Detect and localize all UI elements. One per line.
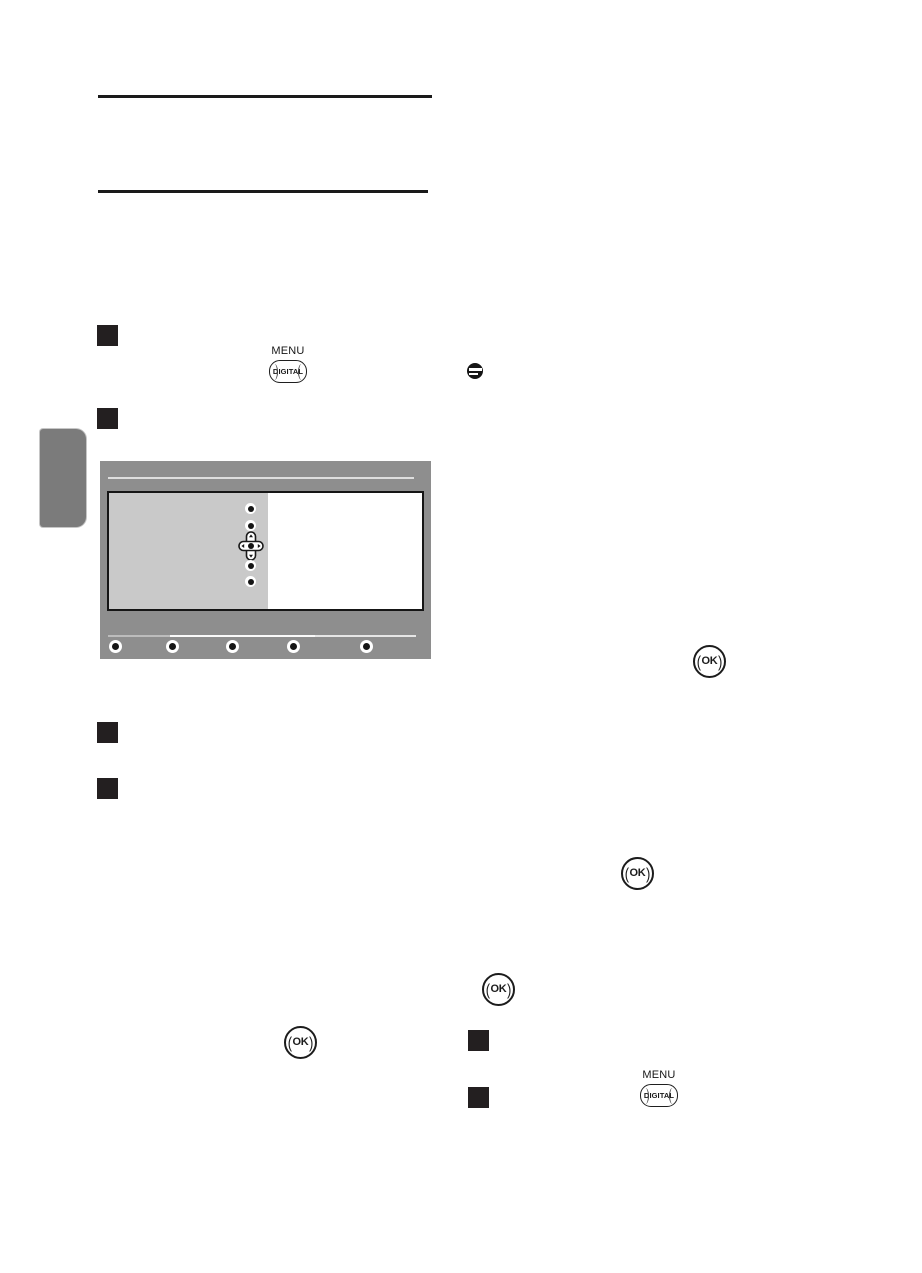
menu-title-line: [108, 477, 414, 479]
menu-key-label: MENU: [271, 346, 304, 357]
menu-digital-key: MENU DIGITAL: [637, 1070, 681, 1107]
note-icon: [467, 363, 483, 379]
step-marker-4: [97, 778, 118, 799]
step-marker-1: [97, 325, 118, 346]
menu-panel: [107, 491, 424, 611]
manual-page: MENU DIGITAL (O: [0, 0, 922, 1273]
menu-key-label: MENU: [642, 1070, 675, 1081]
menu-item-dot: [245, 520, 256, 531]
color-key-dot: [287, 640, 300, 653]
ok-paren-left: (: [486, 982, 490, 998]
tv-menu-mockup: [100, 461, 431, 659]
digital-button-icon: DIGITAL: [269, 360, 307, 383]
ok-key-icon: (OK): [693, 645, 726, 678]
ok-paren-right: ): [646, 866, 650, 882]
ok-key-label: OK: [629, 868, 646, 879]
ok-paren-left: (: [625, 866, 629, 882]
footer-key-line-segment: [315, 635, 416, 637]
color-key-dot: [360, 640, 373, 653]
ok-paren-left: (: [288, 1035, 292, 1051]
menu-item-dot: [245, 503, 256, 514]
ok-key-icon: (OK): [621, 857, 654, 890]
step-marker-6: [468, 1087, 489, 1108]
navigation-cross-icon: [238, 531, 264, 561]
ok-key-label: OK: [490, 984, 507, 995]
color-key-dot: [166, 640, 179, 653]
step-marker-2: [97, 408, 118, 429]
ok-paren-left: (: [697, 654, 701, 670]
menu-item-dot: [245, 576, 256, 587]
digital-button-icon: DIGITAL: [640, 1084, 678, 1107]
ok-key-icon: (OK): [284, 1026, 317, 1059]
footer-key-line-segment: [108, 635, 170, 637]
ok-paren-right: ): [507, 982, 511, 998]
ok-key-icon: (OK): [482, 973, 515, 1006]
ok-paren-right: ): [309, 1035, 313, 1051]
ok-key-label: OK: [701, 656, 718, 667]
menu-item-dot: [245, 560, 256, 571]
step-marker-3: [97, 722, 118, 743]
menu-digital-key: MENU DIGITAL: [266, 346, 310, 383]
menu-right-pane: [268, 493, 422, 609]
section-side-tab: [40, 429, 86, 527]
color-key-dot: [226, 640, 239, 653]
heading-rule-top: [98, 95, 432, 98]
ok-paren-right: ): [718, 654, 722, 670]
ok-key-label: OK: [292, 1037, 309, 1048]
footer-key-line-segment: [170, 635, 315, 637]
heading-rule-bottom: [98, 190, 428, 193]
color-key-dot: [109, 640, 122, 653]
step-marker-5: [468, 1030, 489, 1051]
